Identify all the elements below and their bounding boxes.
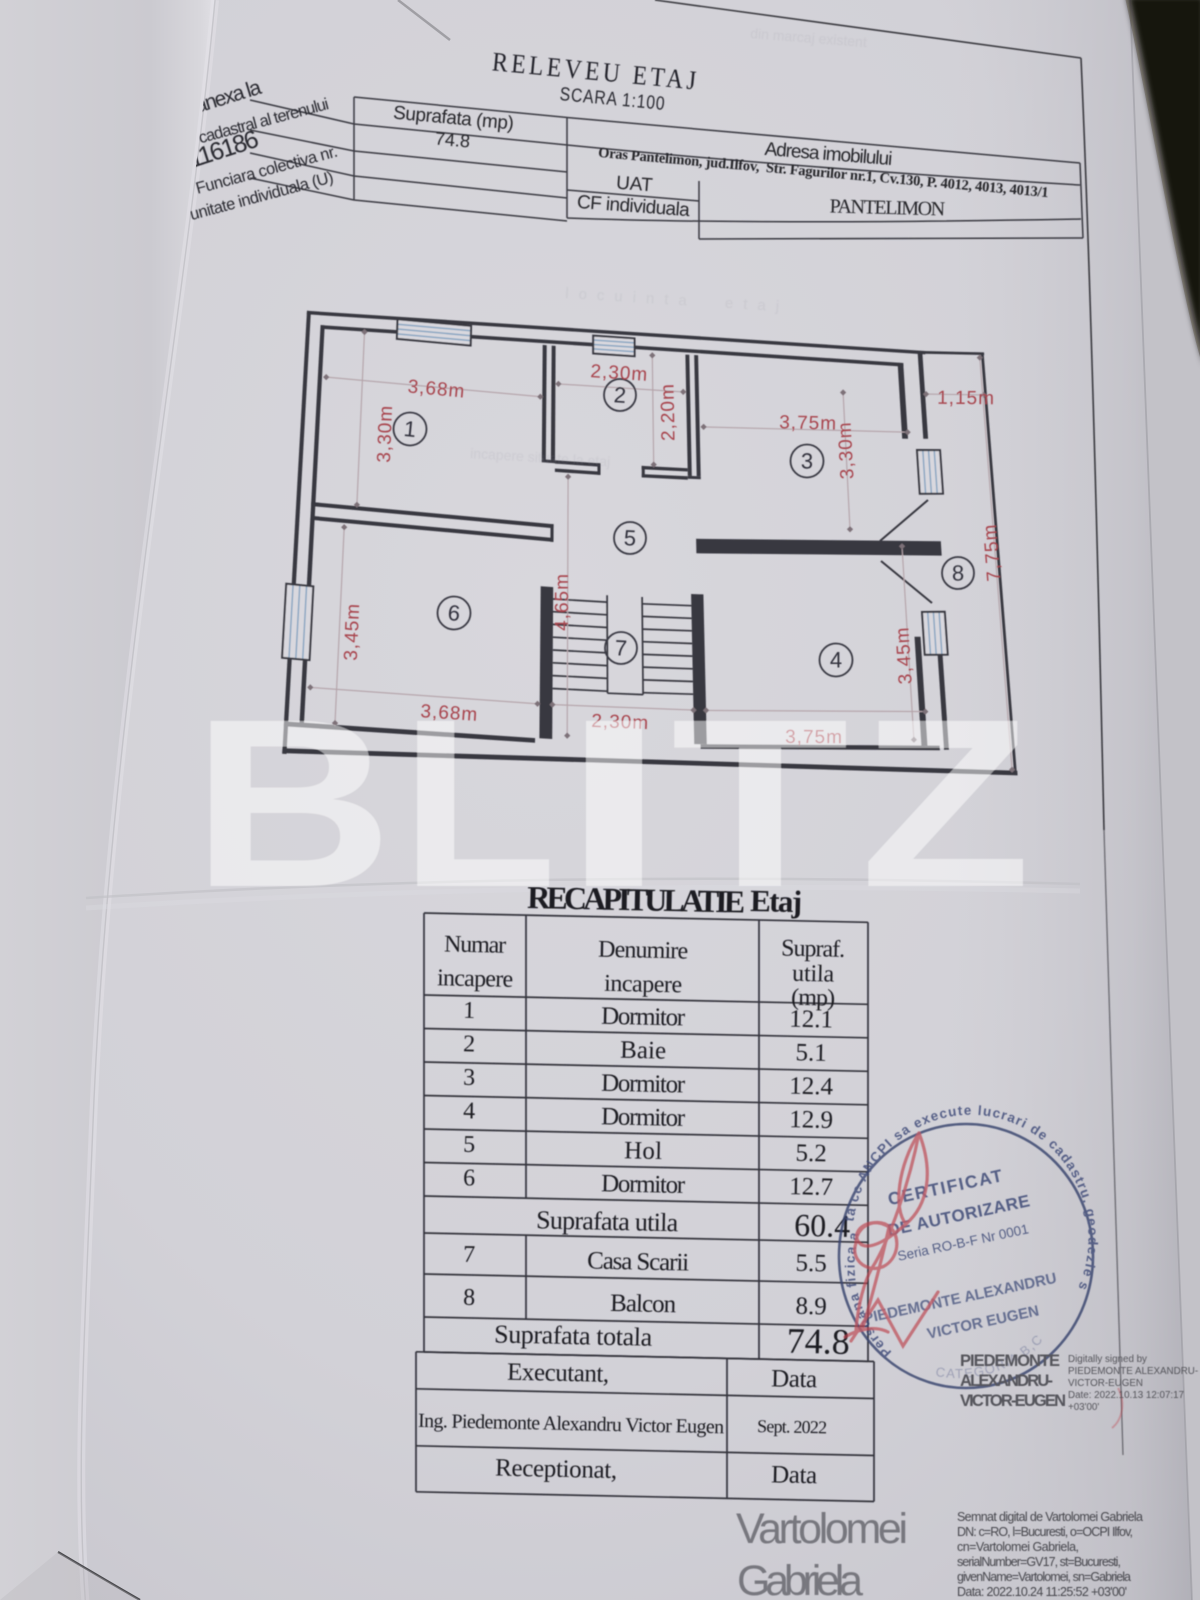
svg-text:RECAPITULATIE: RECAPITULATIE — [527, 879, 746, 920]
svg-text:Suprafata totala: Suprafata totala — [494, 1319, 653, 1351]
svg-text:8: 8 — [952, 560, 965, 585]
svg-text:12.4: 12.4 — [789, 1073, 834, 1101]
svg-text:5: 5 — [623, 525, 637, 551]
svg-text:Vartolomei: Vartolomei — [736, 1505, 908, 1553]
svg-text:utila: utila — [792, 961, 835, 988]
svg-text:4: 4 — [463, 1098, 476, 1124]
svg-text:8.9: 8.9 — [795, 1293, 827, 1321]
svg-text:3: 3 — [801, 448, 814, 473]
svg-text:Date: 2022.10.13 12:07:17: Date: 2022.10.13 12:07:17 — [1068, 1390, 1184, 1401]
svg-text:3,45m: 3,45m — [341, 602, 365, 661]
svg-text:DN: c=RO, l=Bucuresti, o=OCPI: DN: c=RO, l=Bucuresti, o=OCPI Ilfov, — [957, 1525, 1133, 1539]
svg-text:2,20m: 2,20m — [657, 383, 679, 441]
svg-text:ALEXANDRU-: ALEXANDRU- — [960, 1372, 1053, 1390]
svg-text:6: 6 — [463, 1165, 476, 1191]
svg-text:Receptionat,: Receptionat, — [495, 1455, 618, 1485]
svg-text:Dormitor: Dormitor — [601, 1103, 686, 1132]
svg-text:1: 1 — [403, 416, 418, 442]
svg-text:7: 7 — [463, 1242, 476, 1268]
svg-text:UAT: UAT — [615, 173, 653, 197]
svg-text:Dormitor: Dormitor — [601, 1170, 686, 1199]
svg-text:1,15m: 1,15m — [937, 388, 995, 410]
svg-text:Dormitor: Dormitor — [601, 1003, 686, 1032]
svg-text:12.7: 12.7 — [789, 1173, 833, 1201]
svg-text:Casa Scarii: Casa Scarii — [587, 1247, 690, 1276]
svg-text:2,30m: 2,30m — [590, 361, 649, 386]
svg-text:cn=Vartolomei Gabriela,: cn=Vartolomei Gabriela, — [957, 1540, 1079, 1554]
svg-text:VICTOR-EUGEN: VICTOR-EUGEN — [960, 1392, 1066, 1410]
svg-text:VICTOR-EUGEN: VICTOR-EUGEN — [1068, 1378, 1143, 1389]
svg-text:3,30m: 3,30m — [835, 421, 859, 480]
svg-text:3,75m: 3,75m — [779, 412, 837, 434]
svg-text:Numar: Numar — [444, 931, 507, 958]
svg-text:PIEDEMONTE ALEXANDRU-: PIEDEMONTE ALEXANDRU- — [1068, 1366, 1198, 1377]
svg-text:5: 5 — [463, 1132, 476, 1158]
svg-text:Supraf.: Supraf. — [781, 936, 846, 963]
svg-text:Data: Data — [771, 1365, 818, 1393]
svg-text:Sept. 2022: Sept. 2022 — [757, 1416, 827, 1437]
svg-text:3: 3 — [463, 1065, 476, 1091]
svg-text:Gabriela: Gabriela — [737, 1557, 863, 1600]
svg-text:Digitally signed by: Digitally signed by — [1068, 1354, 1147, 1365]
svg-text:5.1: 5.1 — [795, 1039, 827, 1067]
svg-text:Z: Z — [860, 669, 1031, 937]
svg-text:B: B — [192, 669, 393, 937]
svg-text:Executant,: Executant, — [507, 1359, 610, 1388]
svg-text:incapere: incapere — [437, 965, 514, 993]
svg-text:incapere: incapere — [604, 971, 683, 999]
svg-text:PIEDEMONTE: PIEDEMONTE — [960, 1352, 1060, 1370]
svg-text:Etaj: Etaj — [750, 883, 803, 919]
svg-text:6: 6 — [447, 600, 461, 626]
svg-text:7: 7 — [614, 635, 627, 661]
svg-text:12.9: 12.9 — [789, 1106, 833, 1134]
svg-text:5.2: 5.2 — [795, 1140, 827, 1168]
svg-text:1: 1 — [463, 998, 476, 1024]
svg-text:givenName=Vartolomei, sn=Gabri: givenName=Vartolomei, sn=Gabriela — [957, 1570, 1131, 1584]
svg-text:Suprafata utila: Suprafata utila — [536, 1205, 679, 1237]
svg-text:12.1: 12.1 — [789, 1006, 833, 1034]
svg-text:Baie: Baie — [620, 1037, 667, 1065]
svg-text:74.8: 74.8 — [434, 128, 471, 151]
svg-text:serialNumber=GV17, st=Bucurest: serialNumber=GV17, st=Bucuresti, — [957, 1555, 1121, 1569]
svg-text:3,30m: 3,30m — [374, 405, 397, 464]
svg-text:PANTELIMON: PANTELIMON — [829, 195, 947, 220]
svg-text:74.8: 74.8 — [786, 1321, 850, 1362]
svg-text:2: 2 — [613, 382, 627, 408]
svg-text:Balcon: Balcon — [610, 1290, 677, 1318]
svg-text:Data: 2022.10.24 11:25:52 +03': Data: 2022.10.24 11:25:52 +03'00' — [957, 1585, 1127, 1599]
svg-text:+03'00': +03'00' — [1068, 1402, 1099, 1413]
svg-text:Denumire: Denumire — [598, 937, 689, 965]
svg-text:Dormitor: Dormitor — [601, 1070, 686, 1099]
svg-text:Data: Data — [771, 1461, 818, 1489]
svg-text:Hol: Hol — [624, 1137, 663, 1165]
svg-text:5.5: 5.5 — [795, 1250, 827, 1278]
svg-text:4,65m: 4,65m — [552, 573, 573, 631]
svg-text:Semnat digital de Vartolomei G: Semnat digital de Vartolomei Gabriela — [957, 1510, 1143, 1524]
svg-text:8: 8 — [463, 1285, 476, 1311]
svg-text:2: 2 — [463, 1031, 476, 1057]
